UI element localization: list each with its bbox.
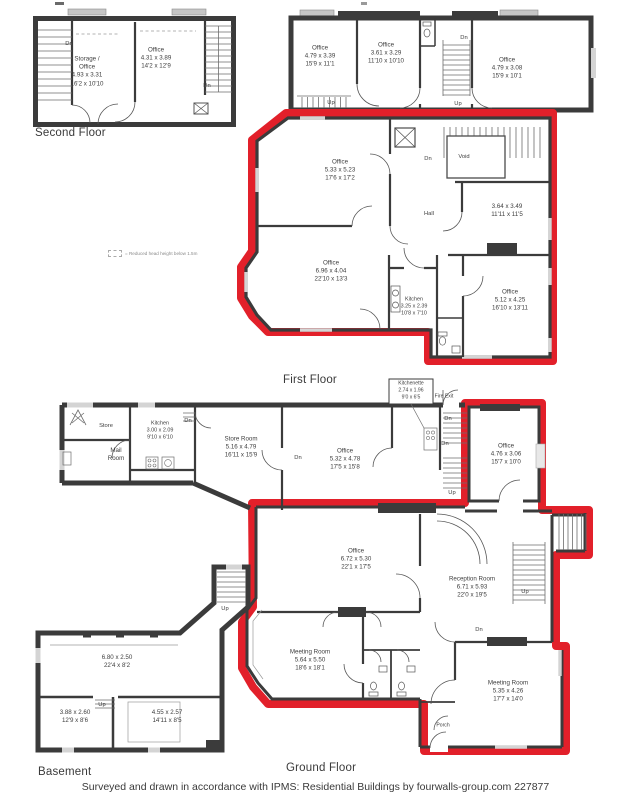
room-label-bs-room-b: 3.88 x 2.60 12'9 x 8'6	[60, 709, 91, 725]
room-name: Meeting Room	[488, 680, 528, 688]
first-floor-red-outline	[241, 113, 553, 361]
room-dim-metric: 5.35 x 4.26	[488, 688, 528, 696]
stair-marker-dn: Dn	[65, 41, 72, 47]
stair-marker-up: Up	[454, 101, 461, 107]
room-name: Kitchen	[147, 420, 174, 427]
room-dim-metric: 5.12 x 4.25	[492, 297, 528, 305]
room-dim-imperial: 11'10 x 10'10	[368, 58, 404, 66]
room-dim-imperial: 15'7 x 10'0	[491, 459, 522, 467]
floorplan-page: Storage / Office 4.93 x 3.31 16'2 x 10'1…	[0, 0, 631, 802]
room-dim-imperial: 16'11 x 15'9	[224, 452, 257, 460]
room-dim-imperial: 12'9 x 8'6	[60, 717, 91, 725]
room-dim-metric: 4.31 x 3.89	[141, 55, 172, 63]
floor-title-ground: Ground Floor	[286, 762, 356, 774]
stair-marker-dn: Dn	[444, 416, 451, 422]
room-dim-imperial: 10'8 x 7'10	[401, 311, 428, 318]
room-name: Office	[341, 548, 372, 556]
room-name: Reception Room	[449, 576, 495, 584]
room-label-gf-office-c: Office 6.72 x 5.30 22'1 x 17'5	[341, 548, 372, 573]
stair-marker-dn: Dn	[294, 455, 301, 461]
room-dim-metric: 6.80 x 2.50	[102, 654, 133, 662]
room-label-sf-office: Office 4.31 x 3.89 14'2 x 12'9	[141, 47, 172, 72]
room-dim-metric: 3.25 x 2.39	[401, 303, 428, 310]
room-name: Office	[491, 443, 522, 451]
fire-exit-label: Fire Exit	[435, 394, 454, 401]
room-dim-metric: 6.72 x 5.30	[341, 556, 372, 564]
stair-marker-dn: Dn	[203, 83, 210, 89]
reduced-head-height-symbol	[108, 250, 122, 257]
scan-mark	[361, 2, 367, 5]
room-dim-metric: 3.00 x 2.09	[147, 427, 174, 434]
room-dim-imperial: 22'1 x 17'5	[341, 564, 372, 572]
stair-marker-up: Up	[327, 100, 334, 106]
room-dim-imperial: 22'10 x 13'3	[315, 276, 348, 284]
room-dim-imperial: 18'6 x 18'1	[290, 665, 330, 673]
room-dim-imperial: 11'11 x 11'5	[491, 211, 523, 219]
survey-footer: Surveyed and drawn in accordance with IP…	[0, 781, 631, 793]
room-dim-imperial: 22'0 x 19'5	[449, 592, 495, 600]
room-dim-metric: 2.74 x 1.96	[398, 388, 424, 395]
room-dim-imperial: 14'2 x 12'9	[141, 63, 172, 71]
room-dim-imperial: 9'0 x 6'5	[398, 394, 424, 401]
room-dim-metric: 4.76 x 3.06	[491, 451, 522, 459]
stair-marker-dn: Dn	[460, 35, 467, 41]
room-dim-metric: 4.79 x 3.39	[305, 53, 336, 61]
room-label-ff-office-a: Office 4.79 x 3.39 15'9 x 11'1	[305, 45, 336, 70]
room-dim-imperial: 16'10 x 13'11	[492, 305, 528, 313]
room-dim-metric: 5.32 x 4.78	[330, 456, 361, 464]
room-dim-imperial: 9'10 x 6'10	[147, 435, 174, 442]
first-floor-upper-walls	[291, 10, 594, 110]
room-label-bs-room-c: 4.55 x 2.57 14'11 x 8'5	[152, 709, 183, 725]
room-name: Office	[325, 159, 356, 167]
void-label: Void	[458, 154, 469, 160]
room-label-gf-mail-room: Mail Room	[108, 447, 125, 463]
stair-marker-up: Up	[521, 589, 528, 595]
room-label-ff-room: 3.64 x 3.49 11'11 x 11'5	[491, 203, 523, 219]
floor-title-first: First Floor	[283, 374, 337, 386]
room-name: Kitchen	[401, 296, 428, 303]
room-name: Office	[305, 45, 336, 53]
stair-marker-dn: Dn	[424, 156, 431, 162]
room-name: Room	[108, 455, 125, 463]
room-dim-imperial: 14'11 x 8'5	[152, 717, 183, 725]
room-label-gf-office-b: Office 4.76 x 3.06 15'7 x 10'0	[491, 443, 522, 468]
room-dim-metric: 3.61 x 3.29	[368, 50, 404, 58]
room-dim-imperial: 17'5 x 15'8	[330, 464, 361, 472]
room-label-sf-storage-office: Storage / Office 4.93 x 3.31 16'2 x 10'1…	[71, 56, 104, 89]
room-dim-metric: 5.33 x 5.23	[325, 167, 356, 175]
room-dim-metric: 4.55 x 2.57	[152, 709, 183, 717]
room-label-gf-store-room: Store Room 5.16 x 4.79 16'11 x 15'9	[224, 436, 257, 461]
room-dim-imperial: 15'9 x 10'1	[492, 73, 523, 81]
room-name: Storage /	[71, 56, 104, 64]
room-dim-imperial: 22'4 x 8'2	[102, 662, 133, 670]
room-dim-metric: 4.79 x 3.08	[492, 65, 523, 73]
room-dim-metric: 3.88 x 2.60	[60, 709, 91, 717]
room-name: Office	[368, 42, 404, 50]
scan-mark	[55, 2, 64, 5]
room-dim-metric: 4.93 x 3.31	[71, 72, 104, 80]
room-name: Store Room	[224, 436, 257, 444]
room-dim-metric: 5.64 x 5.50	[290, 657, 330, 665]
legend: = Reduced head height below 1.5m	[108, 250, 197, 257]
room-name: Mail	[108, 447, 125, 455]
room-dim-metric: 6.71 x 5.93	[449, 584, 495, 592]
room-name: Office	[315, 260, 348, 268]
room-label-gf-kitchen: Kitchen 3.00 x 2.09 9'10 x 6'10	[147, 420, 174, 441]
room-name: Office	[71, 64, 104, 72]
room-dim-imperial: 17'7 x 14'0	[488, 696, 528, 704]
room-label-gf-kitchenette: Kitchenette 2.74 x 1.96 9'0 x 6'5	[398, 381, 424, 402]
room-name: Office	[141, 47, 172, 55]
legend-note: = Reduced head height below 1.5m	[125, 251, 197, 256]
room-label-ff-office-c: Office 4.79 x 3.08 15'9 x 10'1	[492, 57, 523, 82]
room-label-ff-office-e: Office 6.96 x 4.04 22'10 x 13'3	[315, 260, 348, 285]
plant-icon	[70, 410, 86, 425]
hall-label: Hall	[424, 211, 434, 217]
room-name: Kitchenette	[398, 381, 424, 388]
room-label-gf-office-a: Office 5.32 x 4.78 17'5 x 15'8	[330, 448, 361, 473]
room-dim-imperial: 17'6 x 17'2	[325, 175, 356, 183]
room-dim-imperial: 15'9 x 11'1	[305, 61, 336, 69]
room-dim-metric: 3.64 x 3.49	[491, 203, 523, 211]
room-label-gf-meeting-a: Meeting Room 5.64 x 5.50 18'6 x 18'1	[290, 649, 330, 674]
floor-title-second: Second Floor	[35, 127, 106, 139]
room-label-gf-reception: Reception Room 6.71 x 5.93 22'0 x 19'5	[449, 576, 495, 601]
stair-marker-dn: Dn	[184, 418, 191, 424]
room-name: Office	[492, 289, 528, 297]
stair-marker-up: Up	[221, 606, 228, 612]
room-label-gf-meeting-b: Meeting Room 5.35 x 4.26 17'7 x 14'0	[488, 680, 528, 705]
porch-label: Porch	[436, 723, 449, 730]
room-dim-metric: 5.16 x 4.79	[224, 444, 257, 452]
store-label: Store	[99, 423, 113, 429]
room-label-bs-room-a: 6.80 x 2.50 22'4 x 8'2	[102, 654, 133, 670]
stair-marker-up: Up	[448, 490, 455, 496]
room-name: Office	[330, 448, 361, 456]
room-label-ff-kitchen: Kitchen 3.25 x 2.39 10'8 x 7'10	[401, 296, 428, 317]
room-dim-metric: 6.96 x 4.04	[315, 268, 348, 276]
room-label-ff-office-b: Office 3.61 x 3.29 11'10 x 10'10	[368, 42, 404, 67]
room-dim-imperial: 16'2 x 10'10	[71, 80, 104, 88]
room-label-ff-office-d: Office 5.33 x 5.23 17'6 x 17'2	[325, 159, 356, 184]
stair-marker-dn: Dn	[441, 441, 448, 447]
floorplan-drawing	[0, 0, 631, 802]
floor-title-basement: Basement	[38, 766, 91, 778]
room-name: Meeting Room	[290, 649, 330, 657]
stair-marker-up: Up	[98, 702, 105, 708]
room-label-ff-office-f: Office 5.12 x 4.25 16'10 x 13'11	[492, 289, 528, 314]
stair-marker-dn: Dn	[475, 627, 482, 633]
room-name: Office	[492, 57, 523, 65]
